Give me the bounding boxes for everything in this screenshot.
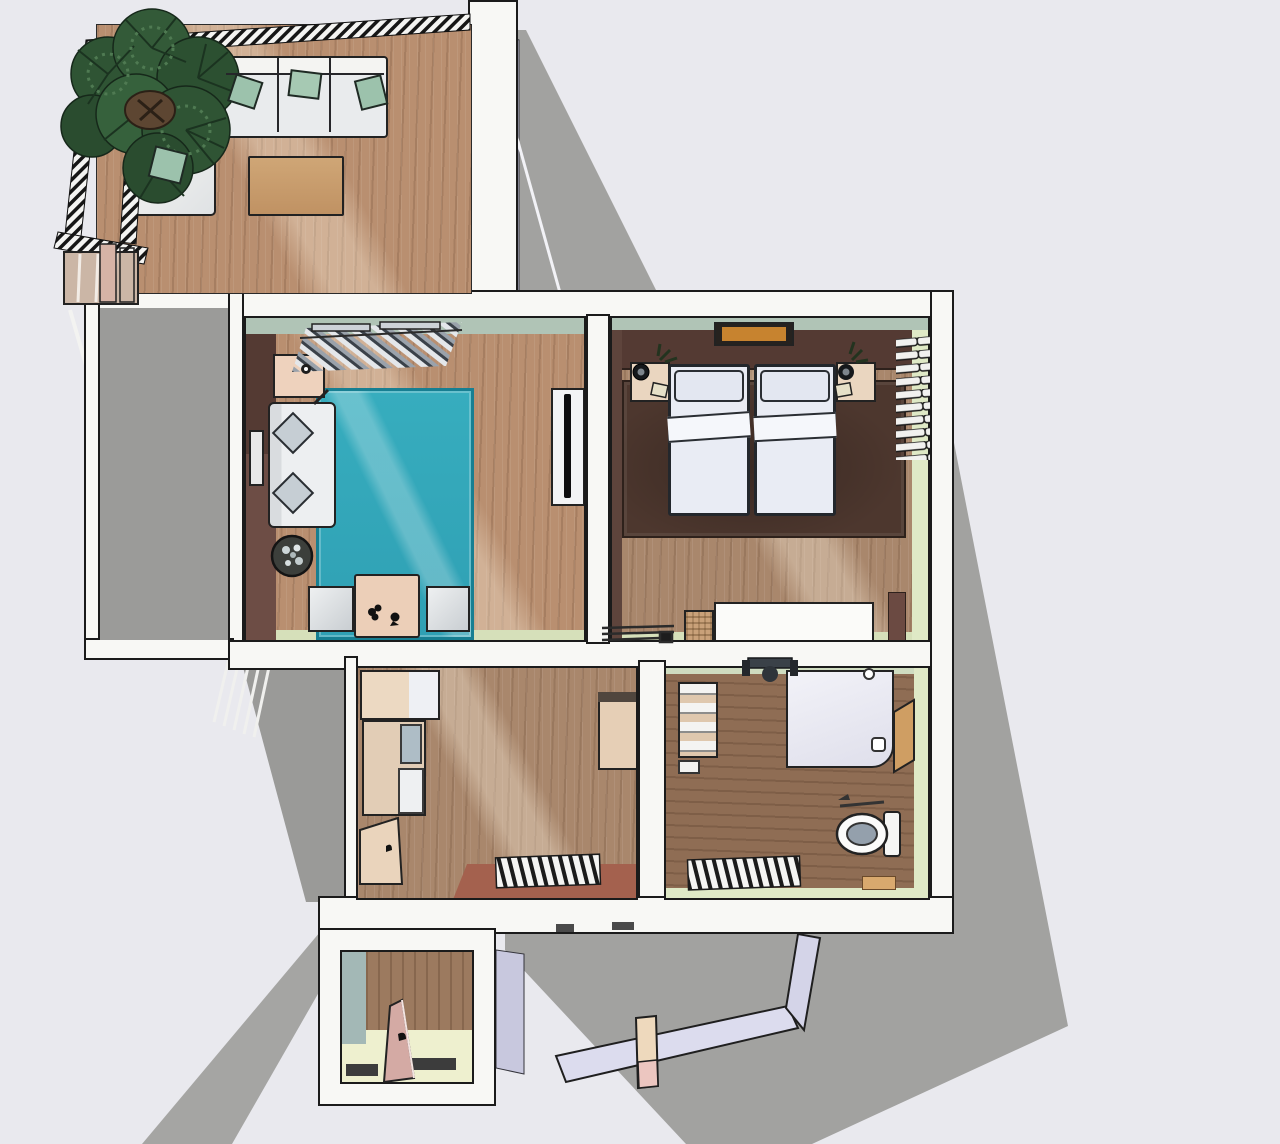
- wall-sliver: [496, 950, 524, 1074]
- open-gate-beam: [556, 934, 820, 1088]
- coffee-table: [248, 156, 344, 216]
- east-wall: [930, 290, 954, 934]
- gate-post-block: [636, 1016, 658, 1088]
- dining-table: [354, 574, 420, 638]
- dining-chair: [426, 586, 470, 632]
- dining-chair: [308, 586, 354, 632]
- side-table: [273, 354, 325, 398]
- door-threshold: [346, 1064, 378, 1076]
- nightstand: [836, 362, 876, 402]
- cabinet-panel: [398, 768, 424, 814]
- side-cabinet: [598, 698, 638, 770]
- hallway: [356, 666, 638, 900]
- towel-shelf: [678, 682, 718, 758]
- cabinet-glass: [400, 724, 422, 764]
- vestibule-back-wall: [366, 952, 474, 1030]
- outdoor-sofa: [224, 56, 388, 138]
- hallway-bathroom-wall: [638, 660, 666, 906]
- bath-mat: [862, 876, 896, 890]
- tv-screen: [564, 394, 571, 498]
- vestibule-west-wallface: [342, 952, 366, 1044]
- side-balcony-floor: [100, 308, 228, 640]
- bathroom: [664, 666, 930, 900]
- bathroom-east-wallface: [914, 668, 930, 900]
- bedroom: [610, 316, 930, 642]
- side-balcony-bottom-wall: [84, 638, 234, 660]
- vestibule: [340, 950, 474, 1084]
- door-panel: [888, 592, 906, 642]
- door-threshold: [404, 1058, 456, 1070]
- duvet-fold: [753, 412, 836, 442]
- storage-bench: [714, 602, 874, 642]
- side-balcony-left-wall: [84, 290, 100, 656]
- bed-pillow: [760, 370, 830, 402]
- living-bedroom-wall: [586, 314, 610, 644]
- wall-picture: [249, 430, 264, 486]
- floorplan-scene: [0, 0, 1280, 1144]
- living-north-wallface: [246, 318, 586, 334]
- shower-tray: [786, 670, 894, 768]
- notch-shadow: [240, 656, 346, 902]
- wicker-basket: [684, 610, 714, 642]
- bedroom-east-wallface: [912, 330, 930, 642]
- living-room-left-wall: [228, 290, 244, 656]
- terrace-right-wall: [468, 0, 518, 302]
- bed-pillow: [674, 370, 744, 402]
- corner-armchair: [134, 144, 216, 216]
- nightstand: [630, 362, 670, 402]
- wardrobe-cabinet: [360, 670, 440, 720]
- living-room: [244, 316, 586, 642]
- entry-floor-strip: [452, 864, 638, 900]
